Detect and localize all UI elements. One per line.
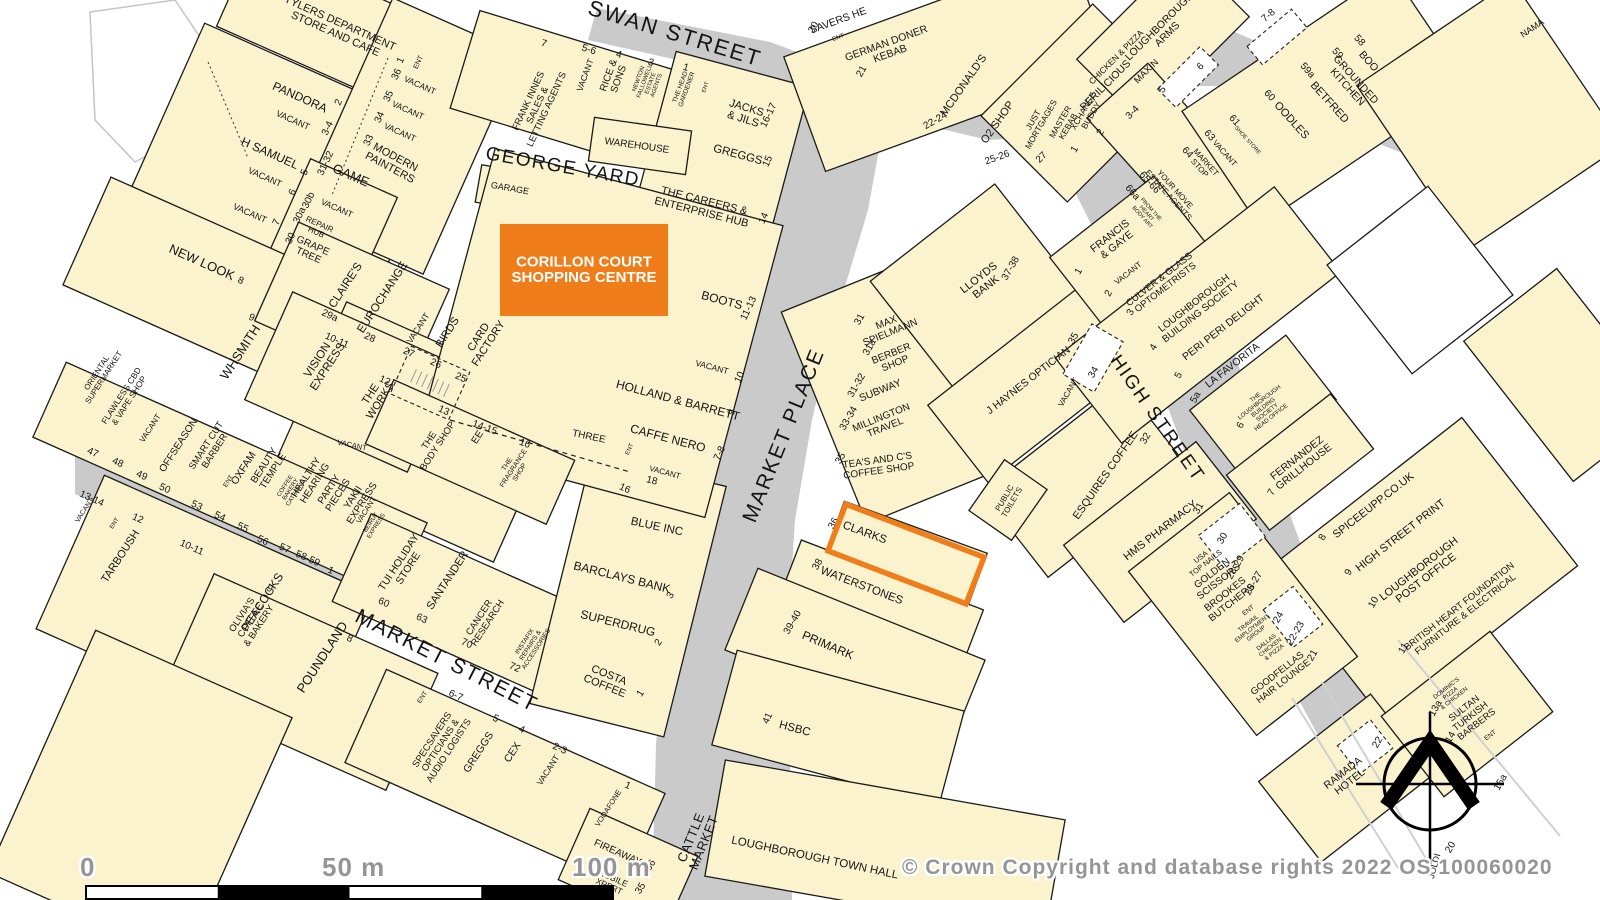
map: TYLERS DEPARTMENTSTORE AND CAFEPANDORAH … [0, 0, 1600, 900]
scale-label-0: 0 [80, 852, 95, 883]
20-label: 20 [1443, 840, 1458, 856]
scale-bar-segment [481, 886, 613, 899]
scale-label-50: 50 m [322, 852, 385, 883]
scale-bar-segment [218, 886, 350, 899]
15a-label: 15a [1492, 772, 1510, 792]
7-8-label: 7-8 [1260, 7, 1278, 25]
25-26-label: 25-26 [983, 148, 1011, 167]
shopping-centre-label: CORILLON COURTSHOPPING CENTRE [511, 253, 656, 286]
copyright-notice: © Crown Copyright and database rights 20… [902, 856, 1553, 880]
scale-label-100: 100 m [572, 852, 651, 883]
map-canvas: TYLERS DEPARTMENTSTORE AND CAFEPANDORAH … [0, 0, 1600, 900]
